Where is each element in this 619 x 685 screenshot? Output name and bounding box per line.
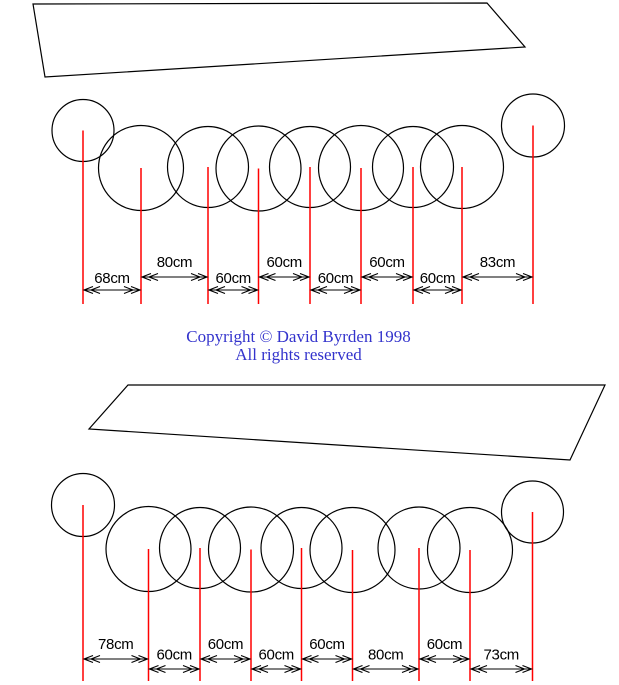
dimension-label: 60cm	[427, 636, 462, 653]
dimension: 83cm	[463, 254, 532, 281]
diagram-page: 68cm80cm60cm60cm60cm60cm60cm83cm78cm60cm…	[0, 0, 619, 685]
dimension-label: 60cm	[157, 647, 192, 664]
dimension-label: 60cm	[259, 647, 294, 664]
table-top-outline	[33, 3, 525, 77]
dimension: 68cm	[84, 270, 140, 294]
dimension: 60cm	[260, 254, 310, 281]
dimension: 80cm	[354, 647, 419, 673]
dimension-label: 68cm	[94, 270, 129, 287]
dimension: 60cm	[311, 270, 360, 294]
dimension-label: 60cm	[369, 254, 404, 271]
bottom-arrangement-diagram: 78cm60cm60cm60cm60cm80cm60cm73cm	[52, 385, 606, 681]
dimension: 60cm	[209, 270, 258, 294]
copyright-line2: All rights reserved	[0, 346, 597, 364]
copyright-line1: Copyright © David Byrden 1998	[0, 328, 597, 346]
dimension: 60cm	[150, 647, 200, 673]
dimension-label: 80cm	[368, 647, 403, 664]
dimension-label: 83cm	[480, 254, 515, 271]
dimension-label: 60cm	[318, 270, 353, 287]
dimension-label: 60cm	[420, 270, 455, 287]
dimension: 78cm	[84, 636, 148, 663]
dimension: 73cm	[471, 647, 532, 673]
dimension-label: 78cm	[98, 636, 133, 653]
top-arrangement-diagram: 68cm80cm60cm60cm60cm60cm60cm83cm	[33, 3, 565, 304]
dimension: 60cm	[362, 254, 412, 281]
table-top-outline	[89, 385, 605, 460]
dimension-label: 60cm	[309, 636, 344, 653]
dimension-label: 73cm	[484, 647, 519, 664]
dimension: 60cm	[201, 636, 250, 663]
dimension: 60cm	[303, 636, 352, 663]
copyright-notice: Copyright © David Byrden 1998 All rights…	[0, 328, 597, 364]
dimension: 80cm	[142, 254, 207, 281]
dimension-label: 80cm	[157, 254, 192, 271]
dimension-label: 60cm	[208, 636, 243, 653]
dimension-label: 60cm	[216, 270, 251, 287]
dimension: 60cm	[252, 647, 301, 673]
dimension: 60cm	[414, 270, 461, 294]
dimension: 60cm	[420, 636, 469, 663]
dimension-label: 60cm	[267, 254, 302, 271]
